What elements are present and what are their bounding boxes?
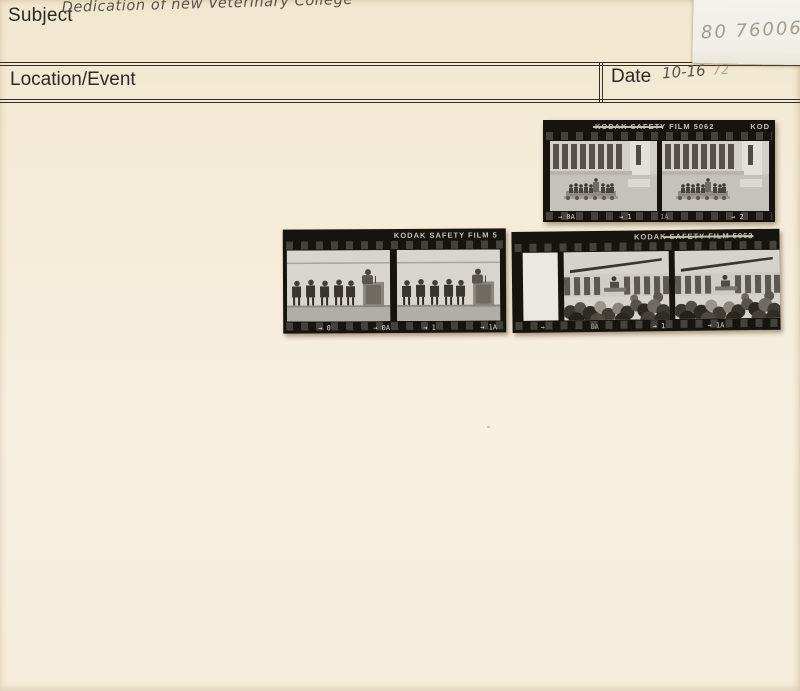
frame-marker: → 0A bbox=[373, 324, 390, 332]
film-strip-middle-right: KODAK SAFETY FILM 5062 → 0A → 1 → 1A bbox=[511, 229, 780, 333]
frame-marker: 1A bbox=[660, 213, 668, 221]
frame-marker: → 1 bbox=[423, 324, 436, 332]
negative-frame-blank bbox=[523, 252, 559, 320]
frame-marker: → 2 bbox=[731, 213, 744, 221]
strike-mark bbox=[593, 126, 663, 128]
date-cell-divider bbox=[599, 63, 603, 102]
negative-frames-row bbox=[283, 249, 506, 321]
negative-frame-stage-building bbox=[662, 141, 769, 211]
film-edge-label-row: KODAK SAFETY FILM 5 bbox=[283, 228, 506, 241]
film-edge-label-row: KODAK SAFETY FILM 5062 KOD bbox=[543, 120, 775, 132]
film-corner-label: KOD bbox=[750, 122, 770, 131]
film-edge-label: KODAK SAFETY FILM 5 bbox=[394, 230, 498, 240]
date-value-main: 10-16 bbox=[661, 61, 706, 82]
paper-speck bbox=[487, 426, 490, 428]
location-event-label: Location/Event bbox=[10, 69, 136, 91]
negative-frame-audience bbox=[564, 251, 670, 320]
sticky-note-number: 80 76006 bbox=[701, 18, 800, 44]
header-rule-bottom bbox=[0, 99, 800, 103]
frame-marker: → bbox=[541, 324, 545, 332]
negative-frames-row bbox=[512, 250, 781, 321]
frame-marker: → 1 bbox=[619, 213, 632, 221]
date-value-partial: 72 bbox=[712, 63, 730, 79]
sprocket-row bbox=[546, 132, 772, 140]
negative-frame-podium-speaker bbox=[397, 249, 500, 321]
film-strip-top: KODAK SAFETY FILM 5062 KOD → 0A → 1 1A →… bbox=[543, 120, 775, 222]
negative-frame-podium-speaker bbox=[287, 250, 390, 322]
film-strip-middle-left: KODAK SAFETY FILM 5 → 0 → 0A → 1 → 1A bbox=[283, 228, 507, 333]
archive-card: Subject Dedication of new Veterinary Col… bbox=[0, 0, 800, 691]
frame-marker: → 0A bbox=[558, 213, 575, 221]
sticky-note: 80 76006 bbox=[692, 0, 800, 65]
date-label: Date bbox=[611, 66, 651, 88]
frame-marker: → 1 bbox=[652, 322, 665, 330]
negative-frame-audience bbox=[675, 250, 781, 319]
negative-frames-row bbox=[543, 141, 775, 211]
sprocket-row bbox=[286, 240, 503, 249]
subject-value-handwritten: Dedication of new Veterinary College bbox=[62, 0, 354, 16]
frame-marker: → 1A bbox=[480, 323, 497, 331]
negative-frame-stage-building bbox=[550, 141, 657, 211]
frame-marker: → 1A bbox=[707, 321, 724, 329]
frame-marker: → 0 bbox=[318, 324, 331, 332]
frame-marker: 0A bbox=[591, 323, 600, 331]
